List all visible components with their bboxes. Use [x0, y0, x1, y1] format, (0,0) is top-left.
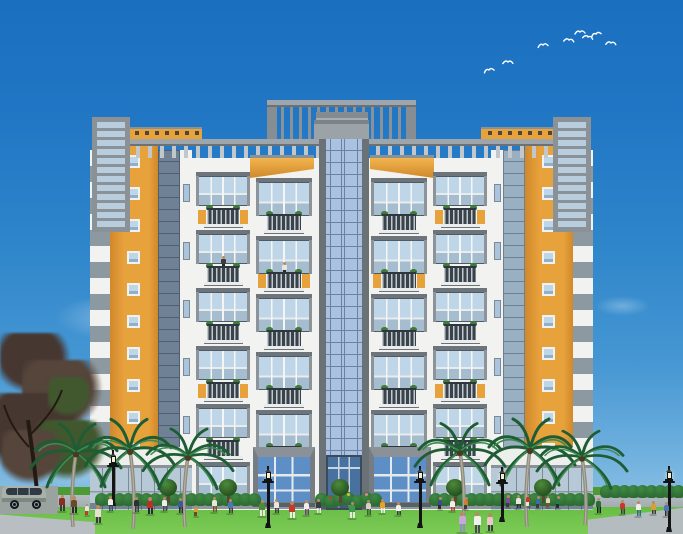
person [71, 496, 77, 514]
architectural-rendering [0, 0, 683, 534]
person [556, 496, 560, 509]
topiary-ball [331, 479, 349, 496]
hedge-flower [365, 493, 368, 496]
person [506, 495, 510, 508]
person-legs [460, 524, 465, 532]
lamp-base [499, 517, 505, 522]
person-legs [438, 505, 441, 509]
person-legs [526, 502, 529, 506]
person-torso [71, 500, 77, 507]
person-legs [597, 507, 601, 513]
person-torso [459, 516, 466, 524]
person [450, 498, 455, 512]
person [95, 505, 101, 524]
person-legs [317, 508, 321, 513]
lamp-base [666, 527, 672, 532]
person [108, 496, 113, 512]
person [596, 498, 601, 514]
person [366, 500, 371, 516]
person-legs [194, 512, 197, 516]
lamp-glass [667, 472, 672, 479]
person [259, 500, 265, 517]
person [526, 495, 530, 507]
person-legs [556, 504, 559, 508]
lamp-pole [501, 480, 504, 518]
person-legs [305, 509, 309, 515]
person-torso [95, 509, 101, 517]
person-legs [381, 508, 385, 513]
street-lamp [663, 466, 675, 532]
person [316, 499, 321, 514]
person [212, 497, 217, 513]
person-legs [72, 507, 77, 513]
person-legs [397, 511, 401, 515]
lamp-pole [419, 479, 422, 524]
person [304, 500, 309, 516]
person [134, 497, 139, 513]
person-legs [148, 508, 153, 514]
hedge-flower [347, 493, 350, 496]
person-legs [506, 503, 509, 507]
person-legs [85, 511, 88, 515]
person [178, 498, 183, 514]
person-torso [59, 498, 65, 505]
person [438, 497, 442, 510]
person-torso [487, 517, 493, 525]
person [464, 497, 468, 510]
topiary-trunk [339, 495, 342, 503]
person-legs [260, 510, 265, 516]
person-legs [488, 525, 493, 531]
person-legs [517, 504, 521, 508]
person [147, 497, 153, 515]
person-legs [665, 511, 669, 516]
hedge-flower [329, 496, 332, 499]
person [274, 499, 279, 514]
person [474, 512, 481, 534]
person-legs [536, 504, 539, 508]
person [664, 502, 669, 517]
person-legs [275, 508, 279, 513]
person [59, 495, 65, 512]
person-legs [290, 512, 295, 518]
lamp-glass [500, 473, 505, 480]
person-legs [179, 507, 183, 513]
person [546, 496, 550, 508]
person-legs [350, 512, 355, 518]
lamp-glass [418, 472, 423, 479]
person-legs [652, 510, 656, 514]
person-torso [259, 503, 265, 510]
lamp-glass [266, 472, 271, 479]
person [651, 501, 656, 515]
person [228, 499, 233, 514]
person [459, 512, 466, 533]
foreground-layer [0, 0, 683, 534]
person-legs [464, 505, 467, 509]
lamp-glass [111, 456, 116, 463]
lamp-base [265, 523, 271, 528]
person [396, 502, 401, 516]
street-lamp [414, 466, 426, 528]
van-wheel-rear [10, 500, 19, 509]
person-legs [163, 506, 167, 511]
person-legs [451, 507, 455, 511]
person-legs [109, 505, 113, 511]
person-legs [621, 509, 625, 514]
street-lamp [262, 466, 274, 528]
lamp-pole [267, 479, 270, 524]
lamp-base [417, 523, 423, 528]
person [194, 506, 198, 517]
person [289, 501, 295, 519]
person-torso [349, 505, 355, 512]
person-legs [637, 510, 641, 516]
person-legs [135, 506, 139, 512]
person-torso [289, 505, 295, 512]
person [516, 495, 521, 509]
person-legs [367, 509, 371, 515]
person [349, 502, 355, 519]
person [536, 496, 540, 509]
person-legs [229, 508, 233, 513]
person [162, 497, 167, 512]
person-legs [213, 506, 217, 512]
person [487, 513, 493, 532]
person-legs [475, 525, 480, 533]
person-legs [60, 505, 65, 511]
person [636, 501, 641, 517]
person-legs [96, 517, 101, 523]
person-legs [546, 503, 549, 507]
person-torso [147, 501, 153, 508]
person [85, 504, 89, 516]
person [380, 499, 385, 514]
person-torso [474, 516, 481, 525]
person [620, 500, 625, 515]
